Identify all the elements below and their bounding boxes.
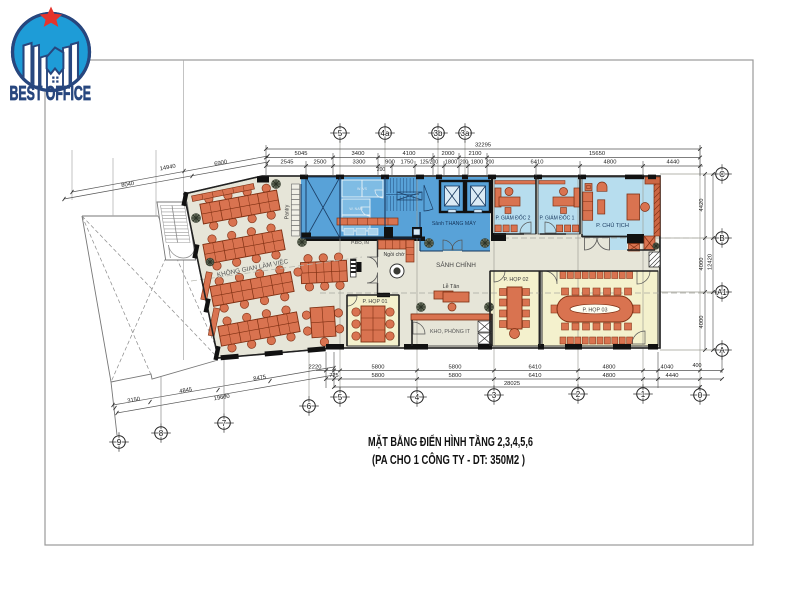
svg-text:P. HỌP 03: P. HỌP 03 [583,308,608,314]
svg-text:5800: 5800 [449,365,462,371]
svg-text:725: 725 [329,373,338,379]
svg-text:5800: 5800 [372,373,385,379]
svg-text:200: 200 [486,160,495,166]
svg-text:5045: 5045 [295,151,308,157]
svg-text:Lễ Tân: Lễ Tân [443,283,460,290]
svg-text:5800: 5800 [372,365,385,371]
svg-text:6: 6 [307,402,312,411]
svg-text:4a: 4a [381,129,390,138]
svg-text:4800: 4800 [603,365,616,371]
svg-text:3a: 3a [461,129,470,138]
svg-text:15650: 15650 [589,151,605,157]
svg-text:BEST OFFICE: BEST OFFICE [10,83,92,105]
svg-text:P. GIÁM ĐỐC 1: P. GIÁM ĐỐC 1 [540,215,575,222]
svg-text:KHO, PHÒNG IT: KHO, PHÒNG IT [430,328,471,335]
svg-text:SẢNH CHÍNH: SẢNH CHÍNH [436,260,476,269]
svg-text:1800: 1800 [471,160,483,166]
svg-text:C: C [719,170,725,179]
svg-text:1750: 1750 [401,160,414,166]
svg-text:W. NAM: W. NAM [349,207,362,211]
svg-text:9: 9 [117,438,122,447]
svg-text:6410: 6410 [529,365,542,371]
svg-text:2000: 2000 [442,151,455,157]
svg-text:0: 0 [698,391,703,400]
svg-text:4040: 4040 [661,365,674,371]
svg-text:1800: 1800 [445,160,457,166]
svg-text:2100: 2100 [469,151,482,157]
svg-text:P. HỌP 02: P. HỌP 02 [504,277,529,283]
svg-text:200: 200 [377,167,386,173]
svg-text:3b: 3b [434,129,443,138]
svg-text:400: 400 [693,363,702,369]
svg-text:P. CHỦ TỊCH: P. CHỦ TỊCH [596,222,629,229]
svg-text:4440: 4440 [666,373,679,379]
svg-text:P. HỌP 01: P. HỌP 01 [363,299,388,305]
svg-text:P. GIÁM ĐỐC 2: P. GIÁM ĐỐC 2 [496,215,531,222]
svg-text:7: 7 [222,419,227,428]
svg-text:2500: 2500 [314,160,327,166]
svg-text:12420: 12420 [708,254,714,270]
svg-text:4440: 4440 [667,160,680,166]
svg-text:2545: 2545 [281,160,294,166]
svg-text:1: 1 [641,390,646,399]
svg-text:(PA CHO 1 CÔNG TY - DT: 350M2: (PA CHO 1 CÔNG TY - DT: 350M2 ) [372,452,525,467]
svg-text:200: 200 [460,160,469,166]
svg-text:3300: 3300 [353,160,366,166]
svg-text:125/200: 125/200 [420,160,438,166]
svg-text:4420: 4420 [699,199,705,212]
svg-text:4800: 4800 [604,160,617,166]
svg-text:2: 2 [576,390,581,399]
svg-text:28025: 28025 [504,381,520,387]
svg-text:4000: 4000 [699,316,705,329]
svg-text:A: A [719,346,725,355]
svg-text:8: 8 [159,429,164,438]
svg-text:Ngồi chờ: Ngồi chờ [384,252,406,258]
svg-text:A1: A1 [717,288,727,297]
svg-text:4000: 4000 [699,258,705,271]
svg-text:6410: 6410 [529,373,542,379]
svg-text:B: B [719,234,724,243]
svg-text:2220: 2220 [309,365,322,371]
svg-text:W. VS: W. VS [357,187,368,191]
svg-text:5: 5 [338,393,343,402]
svg-text:MẶT BẰNG ĐIỂN HÌNH TẦNG 2,3,4,: MẶT BẰNG ĐIỂN HÌNH TẦNG 2,3,4,5,6 [368,434,533,449]
svg-text:4100: 4100 [403,151,416,157]
svg-text:3400: 3400 [352,151,365,157]
svg-text:3: 3 [492,391,497,400]
svg-text:4: 4 [415,393,420,402]
svg-text:5: 5 [338,129,343,138]
svg-text:5800: 5800 [449,373,462,379]
svg-text:P.ĐỒ, IN: P.ĐỒ, IN [351,239,369,245]
svg-text:4800: 4800 [603,373,616,379]
svg-text:Sảnh THANG MÁY: Sảnh THANG MÁY [432,220,477,227]
svg-text:Pantry: Pantry [285,204,291,219]
svg-text:32295: 32295 [475,143,491,149]
